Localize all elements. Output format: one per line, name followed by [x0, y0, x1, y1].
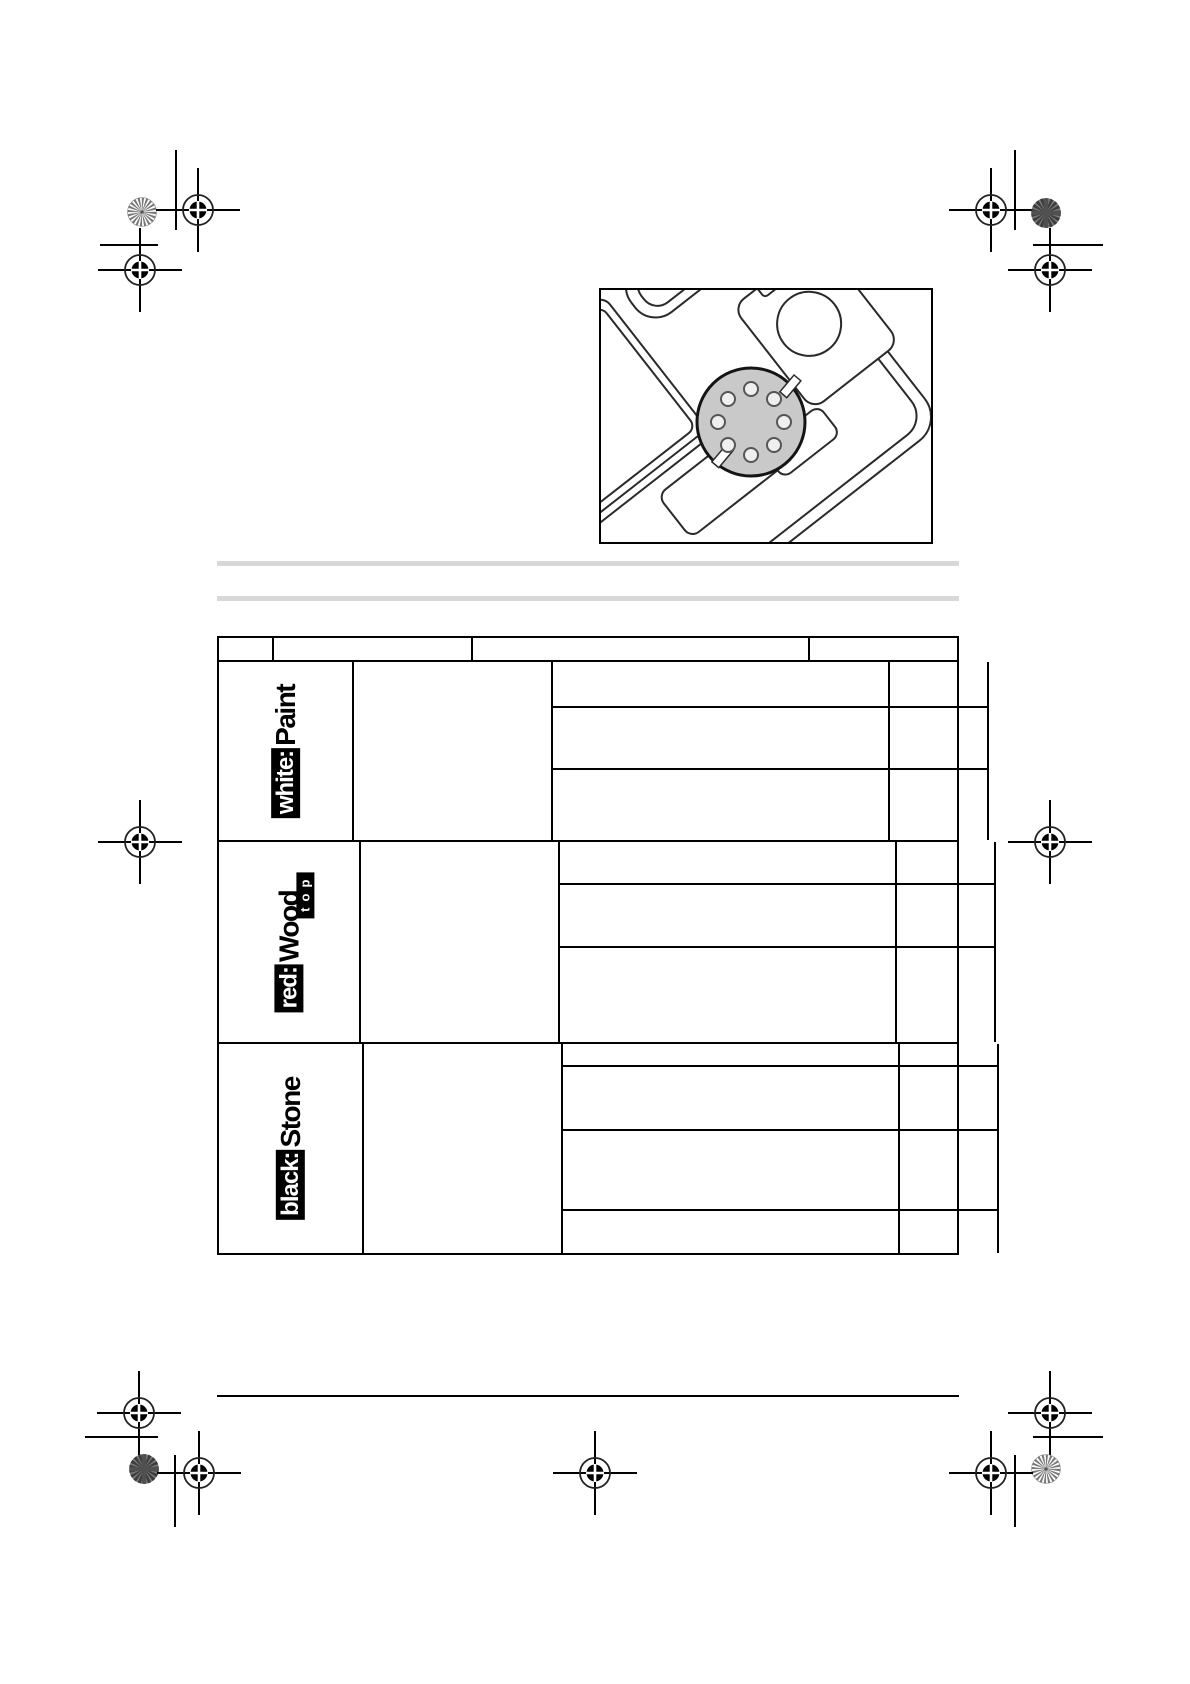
group-rows	[553, 662, 989, 840]
grit-range-cell	[897, 885, 996, 946]
brand-name-label: Paint	[272, 684, 299, 747]
grit-range-cell	[900, 1211, 999, 1253]
star-target-icon	[1028, 1451, 1064, 1487]
brand-prefix-label: black:	[276, 1149, 305, 1219]
header-cell-grit	[810, 638, 957, 660]
application-cell	[560, 842, 897, 883]
table-header-row	[219, 638, 957, 662]
case-drawing	[601, 290, 931, 542]
brand-logo: black: Stone	[276, 1077, 305, 1220]
brand-logo-red-wood-top: red: Wood top	[219, 842, 361, 1042]
table-row	[553, 662, 989, 706]
scanned-manual-page: white: Paint	[0, 0, 1190, 1684]
star-target-icon	[124, 194, 160, 230]
brand-logo: white: Paint	[271, 684, 300, 817]
table-row	[560, 842, 996, 883]
grit-range-cell	[900, 1044, 999, 1065]
brand-prefix-label: red:	[274, 964, 303, 1012]
table-row	[553, 768, 989, 840]
registration-mark-icon	[949, 1431, 1033, 1515]
application-cell	[553, 662, 890, 706]
material-cell	[364, 1044, 563, 1253]
brand-logo-white-paint: white: Paint	[219, 662, 354, 840]
brand-prefix-label: white:	[271, 747, 300, 817]
application-cell	[560, 948, 897, 1042]
separator-bar	[217, 596, 959, 601]
crop-line	[85, 1436, 158, 1438]
crop-line	[1014, 150, 1016, 230]
brand-logo: red: Wood top	[274, 872, 303, 1012]
registration-mark-icon	[553, 1431, 637, 1515]
grit-range-cell	[897, 948, 996, 1042]
header-cell-material	[274, 638, 473, 660]
grit-range-cell	[890, 708, 989, 768]
table-row	[560, 946, 996, 1042]
application-cell	[563, 1131, 900, 1209]
group-rows	[563, 1044, 999, 1253]
crop-line	[1033, 1436, 1103, 1438]
star-target-icon	[1028, 195, 1064, 231]
table-group-red-wood-top: red: Wood top	[219, 840, 957, 1042]
table-row	[560, 883, 996, 946]
sanding-pad	[697, 368, 805, 476]
application-cell	[553, 770, 890, 840]
selection-table: white: Paint	[217, 636, 959, 1255]
brand-name-label: Stone	[277, 1077, 304, 1149]
grit-range-cell	[897, 842, 996, 883]
table-row	[563, 1129, 999, 1209]
grit-range-cell	[900, 1131, 999, 1209]
grit-range-cell	[890, 662, 989, 706]
registration-mark-icon	[98, 800, 182, 884]
footer-rule	[217, 1395, 959, 1397]
material-cell	[361, 842, 560, 1042]
table-row	[563, 1209, 999, 1253]
header-cell-application	[473, 638, 810, 660]
table-row	[563, 1044, 999, 1065]
registration-mark-icon	[1008, 228, 1092, 312]
application-cell	[553, 708, 890, 768]
table-group-white-paint: white: Paint	[219, 662, 957, 840]
application-cell	[560, 885, 897, 946]
registration-mark-icon	[98, 228, 182, 312]
brand-logo-black-stone: black: Stone	[219, 1044, 364, 1253]
case-illustration	[599, 288, 933, 544]
registration-mark-icon	[1008, 800, 1092, 884]
header-cell-brand	[219, 638, 274, 660]
table-group-black-stone: black: Stone	[219, 1042, 957, 1253]
registration-mark-icon	[157, 1431, 241, 1515]
application-cell	[563, 1044, 900, 1065]
application-cell	[563, 1211, 900, 1253]
material-cell	[354, 662, 553, 840]
separator-bar	[217, 561, 959, 566]
grit-range-cell	[890, 770, 989, 840]
application-cell	[563, 1067, 900, 1129]
brand-suffix-label: top	[296, 872, 314, 918]
table-row	[553, 706, 989, 768]
table-row	[563, 1065, 999, 1129]
grit-range-cell	[900, 1067, 999, 1129]
group-rows	[560, 842, 996, 1042]
